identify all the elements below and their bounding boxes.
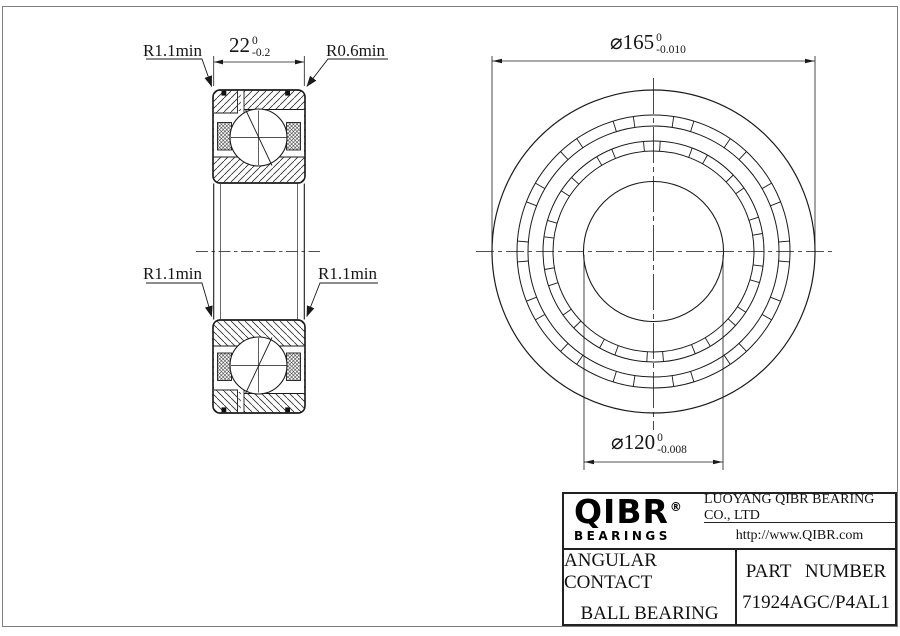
- radius-label-mid-left: R1.1min: [143, 265, 202, 282]
- width-dimension-label: 22 0 -0.2: [229, 35, 270, 60]
- front-view: [476, 56, 832, 470]
- part-number-cell: PART NUMBER 71924AGC/P4AL1: [737, 550, 895, 624]
- part-number-label: PART NUMBER: [746, 561, 886, 583]
- width-value: 22: [229, 35, 250, 56]
- company-name: LUOYANG QIBR BEARING CO., LTD: [704, 494, 895, 522]
- section-top-half: [213, 90, 305, 183]
- logo-subtext: BEARINGS: [574, 529, 704, 543]
- company-logo: QIBR® BEARINGS: [574, 495, 704, 547]
- company-website: http://www.QIBR.com: [704, 522, 895, 548]
- cross-section-view: [146, 56, 388, 413]
- od-tolerance: 0 -0.010: [656, 32, 686, 57]
- bore-tolerance: 0 -0.008: [657, 432, 687, 457]
- registered-mark-icon: ®: [670, 500, 683, 514]
- drawing-page: 22 0 -0.2 R1.1min R0.6min R1.1min R1.1mi…: [0, 0, 900, 636]
- product-line1: ANGULAR CONTACT: [564, 550, 735, 594]
- title-block-header-row: QIBR® BEARINGS LUOYANG QIBR BEARING CO.,…: [564, 494, 895, 548]
- title-block-lower-row: ANGULAR CONTACT BALL BEARING PART NUMBER…: [564, 548, 895, 624]
- title-block: QIBR® BEARINGS LUOYANG QIBR BEARING CO.,…: [562, 492, 897, 626]
- radius-label-top-left: R1.1min: [143, 42, 202, 59]
- bore-dimension-label: ⌀120 0 -0.008: [611, 432, 687, 457]
- product-line2: BALL BEARING: [580, 603, 718, 625]
- width-dimension: [214, 56, 305, 86]
- bore-value: ⌀120: [611, 432, 655, 453]
- part-number-value: 71924AGC/P4AL1: [742, 592, 890, 614]
- logo-text: QIBR®: [574, 495, 704, 528]
- od-dimension-label: ⌀165 0 -0.010: [610, 32, 686, 57]
- width-tolerance: 0 -0.2: [252, 35, 270, 60]
- radius-label-mid-right: R1.1min: [318, 265, 377, 282]
- product-description-cell: ANGULAR CONTACT BALL BEARING: [564, 550, 737, 624]
- radius-label-top-right: R0.6min: [326, 42, 385, 59]
- od-value: ⌀165: [610, 32, 654, 53]
